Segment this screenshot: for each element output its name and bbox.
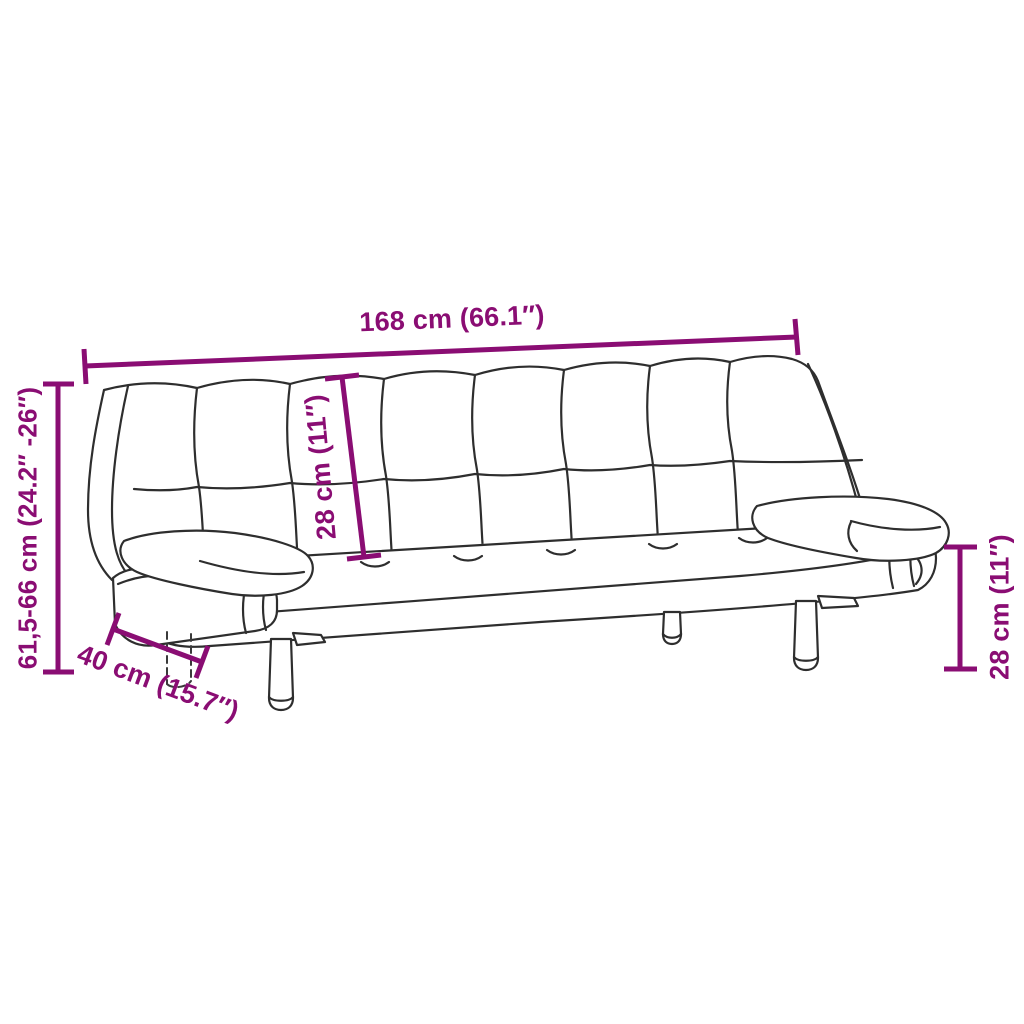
diagram-canvas: 168 cm (66.1″) 61,5-66 cm (24.2″ -26″) 2… <box>0 0 1024 1024</box>
right-leg-plate <box>818 596 858 608</box>
height-dimension-line <box>43 384 74 672</box>
leg-dimension-line <box>944 547 977 669</box>
middle-leg <box>663 612 681 644</box>
height-dimension-label: 61,5-66 cm (24.2″ -26″) <box>13 387 44 669</box>
leg-dimension-label: 28 cm (11″) <box>985 534 1016 680</box>
sofa-illustration <box>88 356 949 710</box>
sofa-dimension-diagram <box>0 0 1024 1024</box>
left-leg-plate <box>293 633 325 645</box>
